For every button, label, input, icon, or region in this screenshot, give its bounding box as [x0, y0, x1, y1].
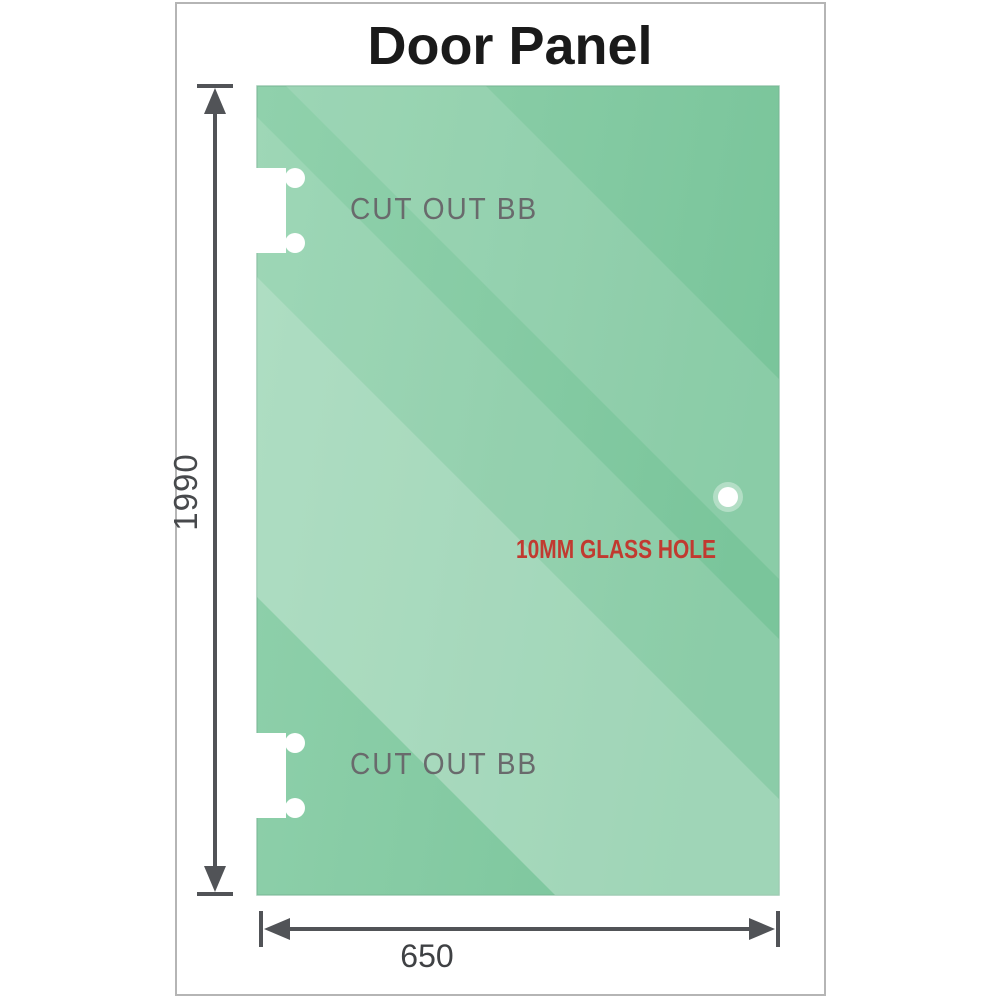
height-dimension-label: 1990: [167, 453, 204, 530]
width-dimension-label: 650: [400, 938, 453, 974]
door-panel-diagram: Door Panel: [0, 0, 1000, 1000]
glass-panel: CUT OUT BB CUT OUT BB 10MM GLASS HOLE: [0, 0, 1000, 1000]
width-dimension-arrow: [261, 911, 778, 947]
glass-hole: [713, 482, 743, 512]
diagram-canvas: Door Panel: [0, 0, 1000, 1000]
cutout-top-label: CUT OUT BB: [350, 191, 538, 226]
glass-hole-label: 10MM GLASS HOLE: [516, 534, 716, 564]
page-title: Door Panel: [367, 16, 652, 76]
cutout-bottom-label: CUT OUT BB: [350, 746, 538, 781]
